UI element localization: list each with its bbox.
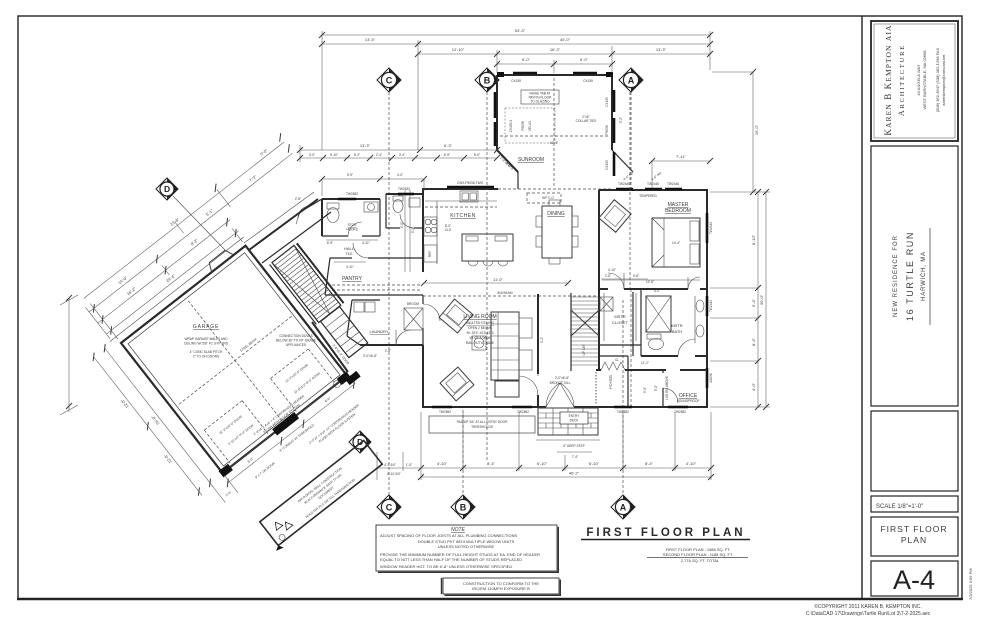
svg-text:4'-0": 4'-0" — [751, 382, 756, 391]
svg-text:4'-0": 4'-0" — [397, 173, 403, 177]
svg-text:EQUAL TO NOT LESS THAN HALF OF: EQUAL TO NOT LESS THAN HALF OF THE NUMBE… — [380, 557, 522, 562]
svg-text:BEDROOM: BEDROOM — [665, 208, 691, 214]
svg-text:IRC/EM 110MPH EXPOSURE B: IRC/EM 110MPH EXPOSURE B — [472, 586, 530, 591]
svg-text:CX155: CX155 — [511, 79, 521, 83]
svg-text:12'-10": 12'-10" — [452, 47, 465, 52]
svg-text:6'-0": 6'-0" — [522, 57, 531, 62]
svg-text:A: A — [620, 502, 627, 512]
svg-text:REF: REF — [428, 251, 432, 257]
svg-text:5'-10": 5'-10" — [330, 153, 338, 157]
svg-text:7/2/2025 3:59 PM: 7/2/2025 3:59 PM — [968, 568, 973, 600]
svg-text:TW2652: TW2652 — [346, 192, 358, 196]
svg-text:3'-4": 3'-4" — [399, 153, 405, 157]
svg-text:2'-4": 2'-4" — [376, 153, 382, 157]
svg-text:C:\DataCAD 17\Drawings\Turtle: C:\DataCAD 17\Drawings\Turtle Run\Lot 3\… — [806, 611, 931, 617]
svg-text:8'-4": 8'-4" — [645, 461, 654, 466]
svg-text:RAIL OUT AT BASE: RAIL OUT AT BASE — [466, 341, 494, 345]
svg-text:P5036: P5036 — [521, 121, 525, 130]
svg-text:BRONZE SILL: BRONZE SILL — [550, 381, 571, 385]
svg-text:4'-8": 4'-8" — [633, 274, 639, 278]
svg-text:ADJUST SPACING OF FLOOR JOISTS: ADJUST SPACING OF FLOOR JOISTS AT ALL PL… — [380, 533, 517, 538]
svg-text:4'-10": 4'-10" — [686, 461, 697, 466]
svg-text:LAUNDRY: LAUNDRY — [369, 329, 388, 334]
svg-text:FIRST FLOOR PLAN: FIRST FLOOR PLAN — [586, 527, 745, 539]
svg-text:APPLIANCES: APPLIANCES — [286, 343, 306, 347]
svg-text:KIP C.O: KIP C.O — [542, 196, 554, 200]
svg-text:2'-8": 2'-8" — [385, 349, 391, 353]
svg-text:CX155: CX155 — [605, 97, 609, 107]
svg-text:BROOM: BROOM — [407, 302, 419, 306]
svg-text:DINING: DINING — [547, 211, 565, 217]
svg-text:SUNROOM: SUNROOM — [518, 157, 544, 163]
svg-text:5'-4": 5'-4" — [751, 298, 756, 307]
svg-text:16'-3": 16'-3" — [550, 47, 561, 52]
svg-text:A2036: A2036 — [709, 373, 713, 382]
svg-text:7'-4": 7'-4" — [572, 455, 578, 459]
svg-text:1'-5": 1'-5" — [406, 463, 412, 467]
svg-text:ENTRY: ENTRY — [569, 414, 581, 418]
svg-text:THRESHOLDS: THRESHOLDS — [471, 425, 493, 429]
svg-text:13'-3": 13'-3" — [656, 47, 667, 52]
svg-text:TW2442: TW2442 — [709, 222, 713, 234]
svg-text:DECK: DECK — [570, 419, 580, 423]
svg-text:B: B — [460, 502, 467, 512]
svg-text:30'-0": 30'-0" — [759, 294, 764, 305]
svg-text:UNLESS NOTED OTHERWISE: UNLESS NOTED OTHERWISE — [438, 544, 495, 549]
svg-text:4'-1 3/4": 4'-1 3/4" — [384, 463, 396, 467]
svg-text:43 ANGELA WAY: 43 ANGELA WAY — [916, 64, 921, 95]
svg-text:6'-0": 6'-0" — [474, 153, 480, 157]
svg-text:8'-4": 8'-4" — [751, 337, 756, 346]
svg-text:CX155: CX155 — [605, 160, 609, 170]
svg-text:TW2446: TW2446 — [618, 182, 630, 186]
svg-text:16'-0": 16'-0" — [754, 124, 759, 135]
svg-text:A-4: A-4 — [893, 565, 935, 595]
svg-text:A: A — [628, 75, 635, 85]
svg-text:UP 14R: UP 14R — [582, 344, 586, 356]
svg-text:D: D — [164, 184, 170, 194]
svg-text:TW2446: TW2446 — [647, 182, 659, 186]
svg-text:8'-4": 8'-4" — [487, 461, 496, 466]
svg-text:GARAGE: GARAGE — [193, 324, 219, 330]
svg-text:LIVING ROOM: LIVING ROOM — [463, 314, 496, 320]
svg-text:SOUNDPROOF: SOUNDPROOF — [677, 399, 700, 403]
svg-text:5'-10 3/4": 5'-10 3/4" — [387, 472, 400, 476]
svg-text:CX155-2: CX155-2 — [509, 119, 513, 132]
svg-text:13'-3": 13'-3" — [360, 143, 371, 148]
svg-text:8x5 BEAM: 8x5 BEAM — [497, 291, 512, 295]
svg-text:4'-11": 4'-11" — [346, 265, 354, 269]
svg-text:40: 32'4"-42'8.4370: 40: 32'4"-42'8.4370 — [466, 331, 494, 335]
svg-text:14'-4": 14'-4" — [672, 241, 680, 245]
svg-text:KAREN B KEMPTON AIA: KAREN B KEMPTON AIA — [883, 24, 893, 135]
svg-text:TW2442: TW2442 — [709, 300, 713, 312]
svg-text:3'-0"x6'-8": 3'-0"x6'-8" — [363, 354, 377, 358]
svg-text:karenkempton@comcast.net: karenkempton@comcast.net — [941, 54, 946, 106]
svg-text:7'-11": 7'-11" — [676, 154, 686, 159]
svg-text:KITCHEN: KITCHEN — [450, 213, 475, 219]
svg-text:4" CONC SLAB PITCH: 4" CONC SLAB PITCH — [190, 350, 223, 354]
svg-text:5'-2": 5'-2" — [619, 117, 623, 123]
svg-text:4'-0": 4'-0" — [654, 289, 660, 293]
svg-text:2" TO OH DOORS: 2" TO OH DOORS — [193, 355, 219, 359]
svg-text:PAD UP 3/4" AT ALL ENTRY DOOR: PAD UP 3/4" AT ALL ENTRY DOOR — [457, 420, 508, 424]
svg-text:6'-9": 6'-9" — [327, 241, 333, 245]
svg-text:6'-9": 6'-9" — [444, 153, 450, 157]
svg-text:9'-0": 9'-0" — [643, 387, 647, 393]
svg-text:WEST BARNSTABLE, MA 02668: WEST BARNSTABLE, MA 02668 — [922, 50, 927, 110]
svg-text:CLG: CLG — [445, 228, 452, 232]
svg-text:CEILING W/ 5/8" FC GYP BRD: CEILING W/ 5/8" FC GYP BRD — [184, 342, 229, 346]
svg-text:4'-11": 4'-11" — [362, 241, 370, 245]
svg-text:TILE: TILE — [346, 252, 353, 256]
svg-text:C: C — [386, 75, 393, 85]
svg-text:OPEN 2 BEAMS: OPEN 2 BEAMS — [468, 326, 492, 330]
svg-text:BELOW 36" TO FIT GRADE: BELOW 36" TO FIT GRADE — [276, 339, 316, 343]
svg-text:NEW RESIDENCE FOR: NEW RESIDENCE FOR — [893, 235, 899, 317]
svg-text:CONNECTION DOVES: CONNECTION DOVES — [279, 334, 312, 338]
svg-text:ARCHITECTURE: ARCHITECTURE — [897, 44, 906, 116]
svg-text:40'-0": 40'-0" — [560, 37, 571, 42]
svg-text:MSTR: MSTR — [671, 323, 682, 328]
svg-text:SECOND FLOOR PLAN : 1188 SQ. F: SECOND FLOOR PLAN : 1188 SQ. FT. — [663, 552, 733, 557]
svg-text:VAULTED CEILING: VAULTED CEILING — [466, 321, 494, 325]
svg-text:9'-2": 9'-2" — [540, 337, 544, 343]
svg-text:CLOSET: CLOSET — [612, 320, 629, 325]
svg-text:53'-3": 53'-3" — [515, 28, 526, 33]
svg-text:6'-10": 6'-10" — [589, 461, 600, 466]
svg-text:4'-10": 4'-10" — [608, 268, 616, 272]
svg-text:6'-0": 6'-0" — [580, 57, 589, 62]
svg-text:5'-0": 5'-0" — [654, 385, 658, 391]
svg-text:TW2632: TW2632 — [398, 187, 410, 191]
svg-text:COLLAR TIES: COLLAR TIES — [576, 119, 597, 123]
svg-text:TW2446: TW2446 — [667, 182, 679, 186]
svg-text:6'-10": 6'-10" — [537, 461, 548, 466]
svg-text:6'-3": 6'-3" — [444, 143, 453, 148]
svg-text:46'-2": 46'-2" — [569, 471, 580, 476]
svg-text:TEMPERED: TEMPERED — [639, 194, 657, 198]
svg-text:4'-10": 4'-10" — [437, 461, 448, 466]
svg-text:2'-6": 2'-6" — [605, 274, 611, 278]
svg-text:11'-2": 11'-2" — [641, 361, 649, 365]
svg-text:BATH: BATH — [672, 329, 682, 334]
svg-text:WINDOW HEADER HGT. TO BE 6'-8": WINDOW HEADER HGT. TO BE 6'-8" UNLESS OT… — [380, 564, 512, 569]
svg-text:2,776 SQ. FT. TOTAL: 2,776 SQ. FT. TOTAL — [681, 558, 720, 563]
svg-text:©COPYRIGHT 2011 KAREN B. KEMPT: ©COPYRIGHT 2011 KAREN B. KEMPTON INC. — [814, 603, 922, 610]
svg-text:CWX-P5036-TWO: CWX-P5036-TWO — [457, 181, 484, 185]
svg-text:LVG RM ABOVE: LVG RM ABOVE — [665, 376, 669, 400]
svg-text:MSTR: MSTR — [614, 314, 625, 319]
svg-text:VELUX: VELUX — [528, 120, 532, 131]
svg-text:PANTRY: PANTRY — [342, 276, 362, 282]
svg-text:C: C — [386, 502, 393, 512]
svg-text:16 TURTLE RUN: 16 TURTLE RUN — [905, 231, 915, 321]
svg-text:6" DEEP STEP: 6" DEEP STEP — [563, 444, 585, 448]
svg-text:2'-8": 2'-8" — [295, 197, 301, 201]
svg-text:11'-0": 11'-0" — [493, 277, 503, 282]
svg-text:3'-0": 3'-0" — [309, 153, 315, 157]
svg-text:13'-3": 13'-3" — [365, 37, 376, 42]
svg-text:TO GLAZING: TO GLAZING — [530, 100, 550, 104]
svg-text:(508) 362-3947 (508) 362-129: (508) 362-3947 (508) 362-1298 FAX — [935, 47, 940, 112]
svg-text:5'-9": 5'-9" — [347, 173, 353, 177]
svg-text:CX155: CX155 — [583, 79, 593, 83]
svg-text:HARWICH, MA: HARWICH, MA — [921, 251, 927, 301]
svg-text:P5036: P5036 — [605, 125, 609, 134]
svg-text:PLAN: PLAN — [901, 535, 927, 545]
svg-text:6'-2": 6'-2" — [354, 153, 360, 157]
svg-text:FOYER: FOYER — [608, 375, 613, 389]
svg-text:B: B — [484, 75, 491, 85]
svg-text:8'-10": 8'-10" — [751, 234, 756, 245]
svg-text:10'-8": 10'-8" — [646, 280, 654, 284]
svg-text:WRAP GARAGE WALLS AND: WRAP GARAGE WALLS AND — [184, 337, 228, 341]
svg-text:HOOKS: HOOKS — [346, 228, 358, 232]
svg-text:TW2852: TW2852 — [674, 410, 686, 414]
svg-text:3'-0"x6'-8": 3'-0"x6'-8" — [555, 376, 569, 380]
svg-text:FIRST FLOOR: FIRST FLOOR — [880, 524, 947, 534]
svg-text:CL: CL — [615, 358, 619, 362]
svg-text:SCALE 1/8"=1'-0": SCALE 1/8"=1'-0" — [876, 504, 923, 510]
svg-text:TW2852: TW2852 — [439, 410, 451, 414]
svg-text:46'=6': 46'=6' — [550, 141, 559, 145]
